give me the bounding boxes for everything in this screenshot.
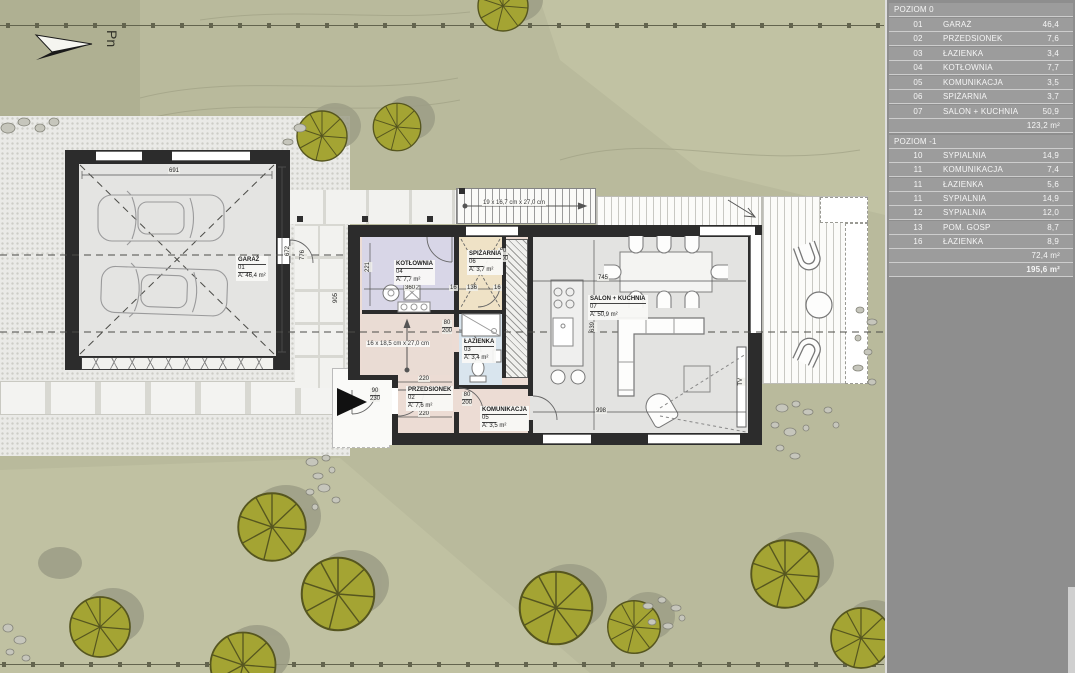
legend-row: 11 SYPIALNIA 14,9 [889, 192, 1073, 206]
dim-wall: 16 [493, 285, 502, 291]
legend-row: 11 ŁAZIENKA 5,6 [889, 178, 1073, 192]
house-window [648, 434, 740, 444]
legend-row: 12 SYPIALNIA 12,0 [889, 206, 1073, 220]
garage-window [96, 151, 142, 161]
legend-panel: POZIOM 0 01 GARAŻ 46,4 02 PRZEDSIONEK 7,… [885, 0, 1075, 673]
house-window [466, 226, 518, 236]
dim-salon-bottom: 998 [595, 408, 607, 414]
legend-row: 06 SPIŻARNIA 3,7 [889, 90, 1073, 104]
interior-wall [454, 412, 459, 433]
legend-level-1-total: 72,4 m² [889, 249, 1073, 263]
room-label-garaz: GARAŻ 01 A: 46,4 m² [236, 256, 268, 281]
room-label-lazienka: ŁAZIENKA 03 A: 3,4 m² [462, 338, 496, 363]
salon-floor [530, 237, 748, 433]
interior-wall [454, 385, 528, 389]
north-arrow-icon [36, 35, 92, 60]
interior-wall [528, 237, 533, 396]
terrain-patch [540, 0, 885, 215]
room-label-komunikacja: KOMUNIKACJA 05 A: 3,5 m² [480, 406, 529, 431]
legend-row: 07 SALON + KUCHNIA 50,9 [889, 105, 1073, 119]
path-slabs [283, 190, 457, 224]
legend-row: 11 KOMUNIKACJA 7,4 [889, 163, 1073, 177]
interior-wall [454, 237, 459, 313]
dim-wall: 16 [449, 285, 458, 291]
room-label-spizarnia: SPIŻARNIA 06 A: 3,7 m² [467, 250, 503, 275]
house-window [543, 434, 591, 444]
dim-garage-height: 672 [284, 246, 292, 256]
dim-salon-width: 745 [597, 275, 609, 281]
room-label-przedsionek: PRZEDSIONEK 02 A: 7,6 m² [406, 386, 453, 411]
legend-level-1-title: POZIOM -1 [889, 135, 1073, 149]
legend-row: 04 KOTŁOWNIA 7,7 [889, 61, 1073, 75]
dim-hall-top: 220 [418, 376, 430, 382]
entry-door-size: 90230 [370, 388, 380, 402]
interior-wall [348, 375, 398, 380]
dim-garage-width: 691 [168, 168, 180, 174]
dim-salon-height: 639 [589, 322, 597, 332]
legend-row: 10 SYPIALNIA 14,9 [889, 149, 1073, 163]
exterior-stairs [456, 188, 596, 224]
salon-glass-wall [750, 235, 762, 333]
terrain-patch [0, 458, 590, 673]
interior-wall [454, 313, 459, 327]
north-deck [596, 196, 762, 226]
internal-stairs-label: 16 x 18,5 cm x 27,0 cm [366, 341, 430, 347]
dim-walkway-length: 905 [332, 293, 340, 303]
entry-door-opening [392, 388, 398, 414]
legend-row: 03 ŁAZIENKA 3,4 [889, 47, 1073, 61]
legend-row: 05 KOMUNIKACJA 3,5 [889, 76, 1073, 90]
legend-row: 16 ŁAZIENKA 8,9 [889, 235, 1073, 249]
legend-row: 02 PRZEDSIONEK 7,6 [889, 32, 1073, 46]
terrace-extension [845, 223, 868, 384]
site-plan-view: 691 672 360 221 16 136 16 745 639 998 22… [0, 0, 1075, 673]
dim-spizarnia-width: 136 [466, 285, 478, 291]
external-stairs-label: 19 x 16,7 cm x 27,0 cm [482, 200, 546, 206]
garage-sectional-door [81, 357, 274, 370]
door-size: 80200 [462, 392, 472, 406]
room-label-salon: SALON + KUCHNIA 07 A: 50,9 m² [588, 295, 648, 320]
terrace-extension [820, 197, 868, 223]
dim-kotlownia-width: 360 [404, 285, 416, 291]
garage-window [172, 151, 250, 161]
legend-row: 13 POM. GOSP 8,7 [889, 221, 1073, 235]
legend-row: 01 GARAŻ 46,4 [889, 18, 1073, 32]
legend-grand-total: 195,6 m² [889, 263, 1073, 277]
legend-level0-total: 123,2 m² [889, 119, 1073, 133]
dim-kotlownia-height: 221 [364, 262, 372, 272]
scrollbar[interactable] [1068, 587, 1075, 673]
interior-wall [362, 310, 502, 314]
dim-hall-bottom: 220 [418, 411, 430, 417]
interior-wall [454, 352, 459, 388]
dim-walkway: 776 [299, 250, 307, 260]
room-label-kotlownia: KOTŁOWNIA 04 A: 7,7 m² [394, 260, 435, 285]
north-label: Pn [104, 30, 120, 47]
terrace-door-glazing [700, 226, 755, 236]
door-size: 80200 [442, 320, 452, 334]
legend-level0-title: POZIOM 0 [889, 3, 1073, 17]
terrain-patch [0, 0, 140, 125]
tv-label: TV [737, 378, 745, 386]
